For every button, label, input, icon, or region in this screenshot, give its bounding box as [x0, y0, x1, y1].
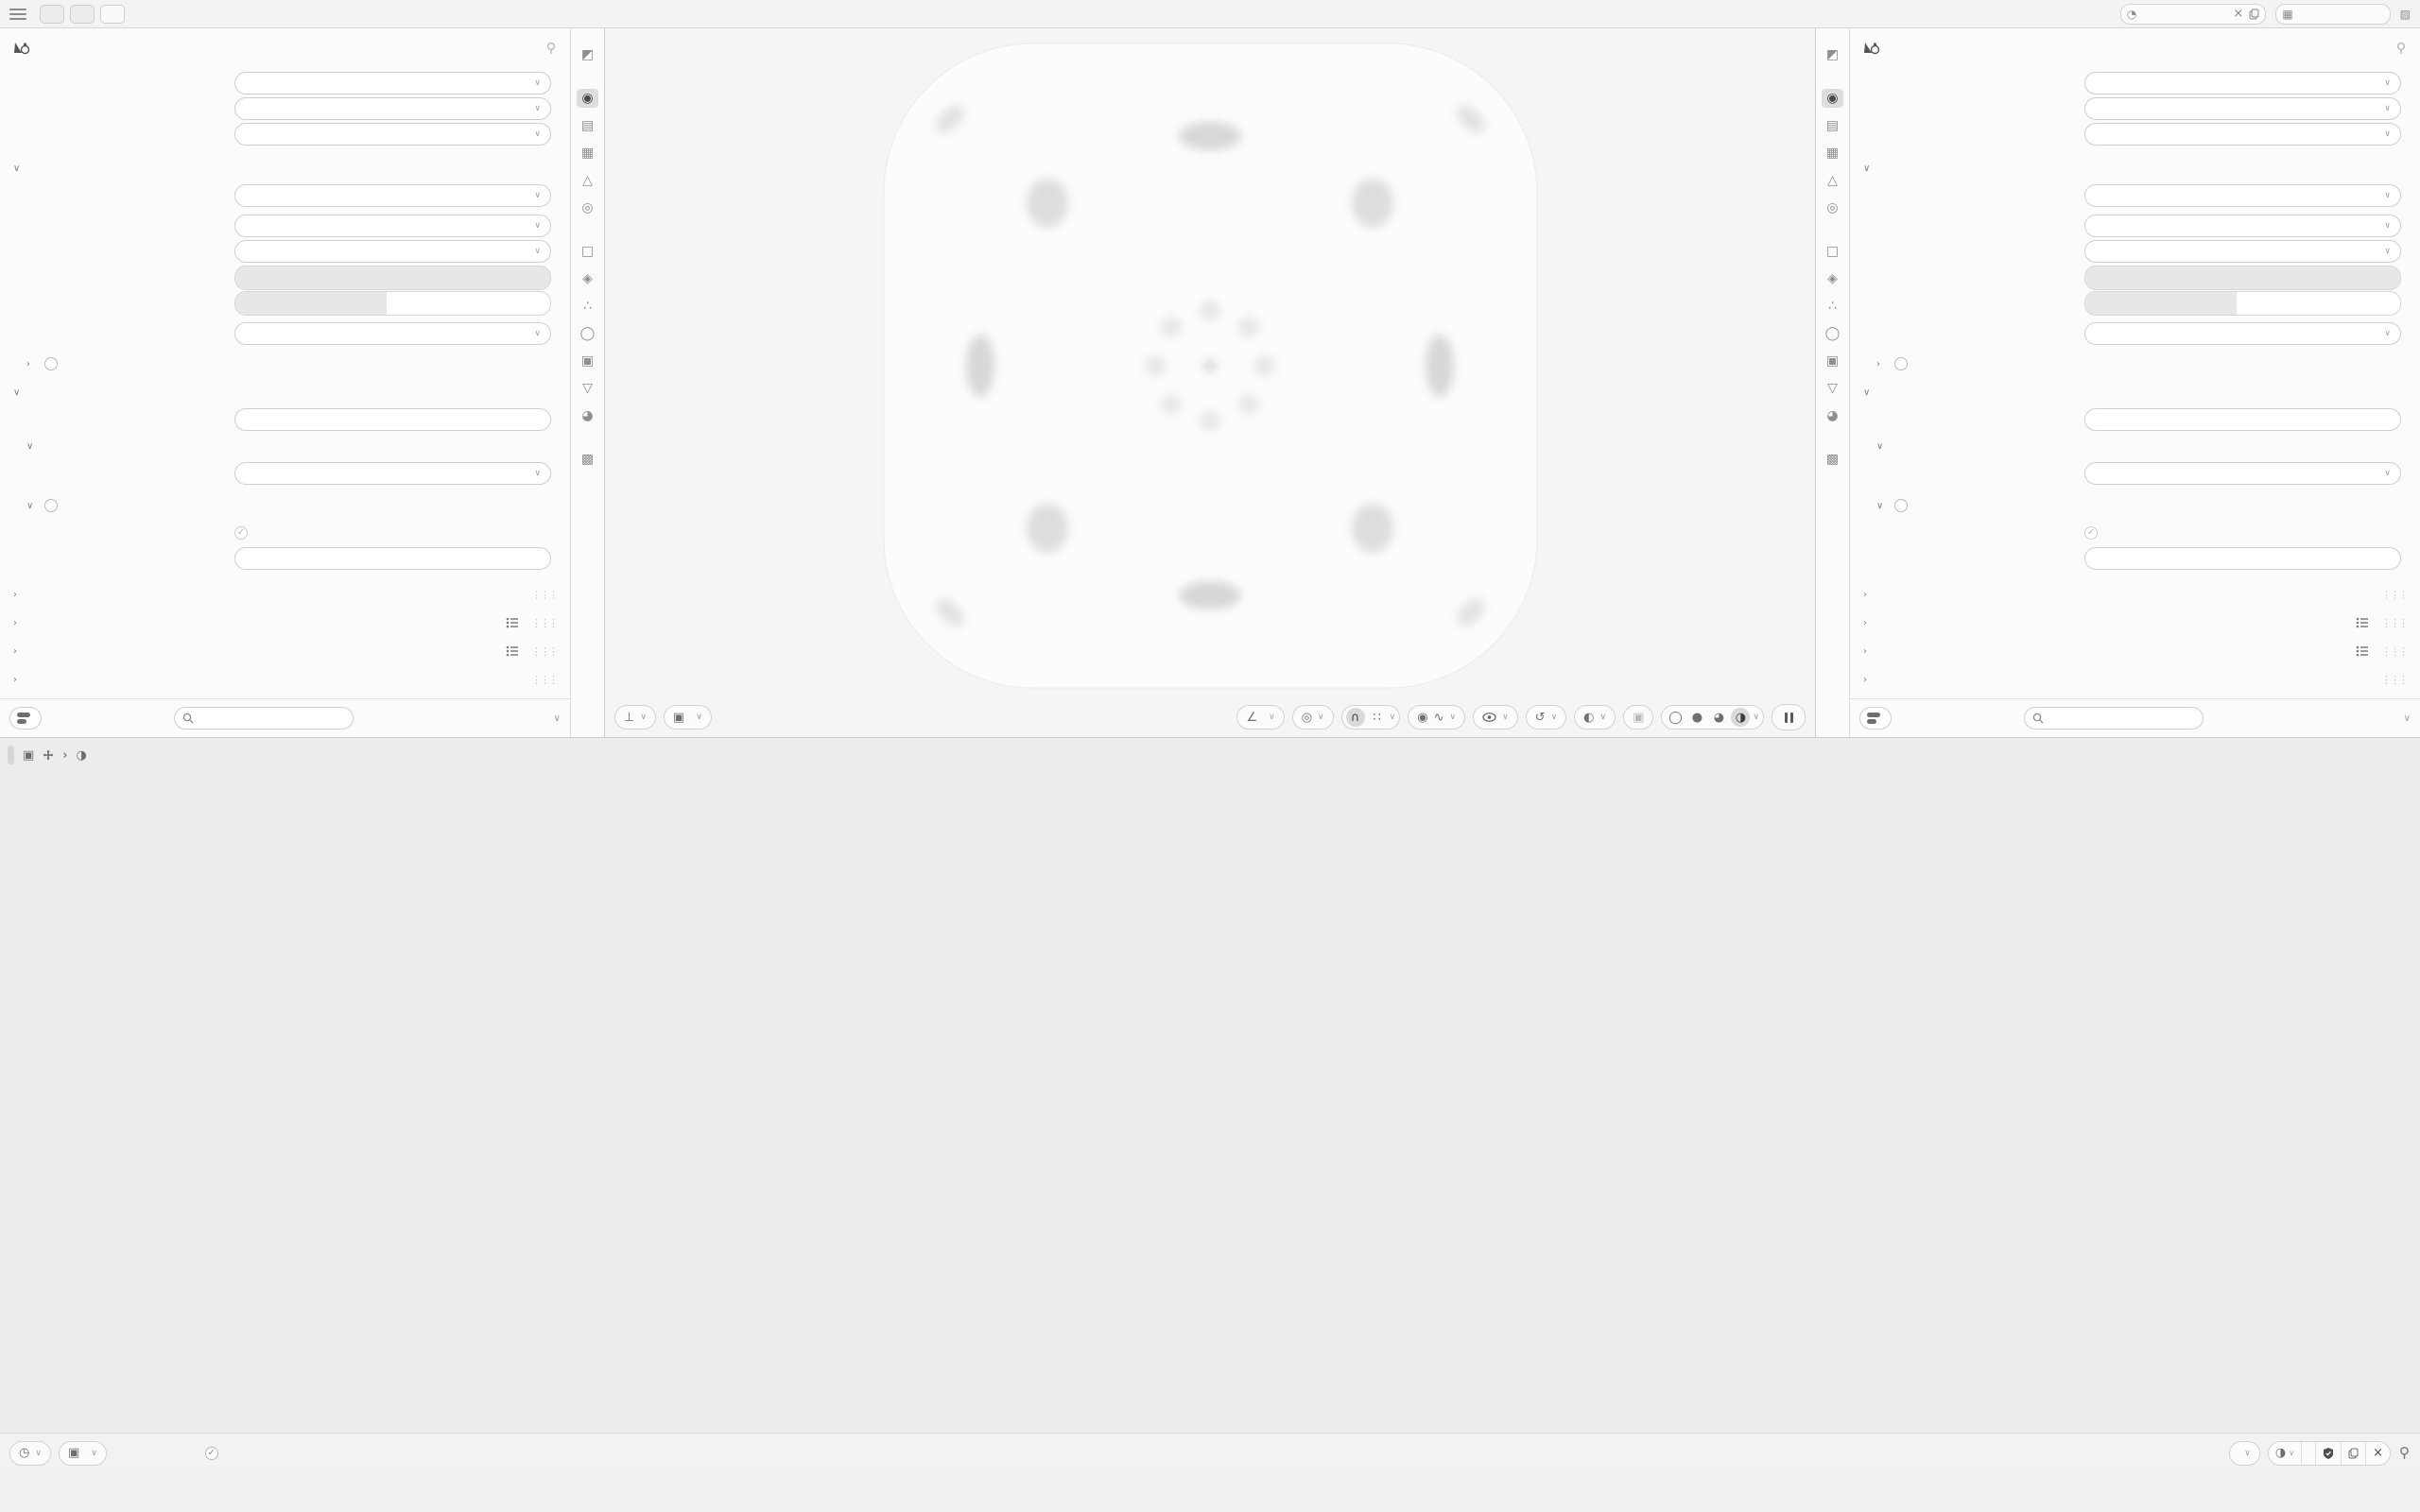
chevron-down-icon: ∨	[534, 129, 541, 139]
chevron-down-icon: ∨	[1502, 713, 1509, 722]
drag-grip-icon[interactable]: ⋮⋮⋮	[2381, 674, 2407, 686]
view-layer-properties-tab-icon[interactable]: ▦	[1822, 144, 1843, 163]
view-transform-select[interactable]: ∨	[234, 215, 551, 237]
sequencer-select[interactable]: ∨	[2084, 322, 2401, 345]
fake-user-shield-icon[interactable]	[2316, 1442, 2342, 1465]
drag-grip-icon[interactable]: ⋮⋮⋮	[531, 589, 557, 601]
shader-type-select[interactable]: ▣∨	[59, 1441, 107, 1466]
chevron-down-icon: ∨	[2384, 129, 2391, 139]
chevron-down-icon: ∨	[534, 469, 541, 478]
editor-type-button[interactable]: ◷∨	[9, 1441, 51, 1466]
collapse-arrow-icon[interactable]: ∨	[13, 163, 25, 174]
transparent-glass-checkbox[interactable]: ✓	[234, 526, 248, 540]
modifiers-properties-tab-icon[interactable]: ◈	[578, 269, 597, 288]
chevron-down-icon: ∨	[2384, 247, 2391, 256]
physics-properties-tab-icon[interactable]: ◯	[576, 324, 600, 343]
physics-properties-tab-icon[interactable]: ◯	[1821, 324, 1845, 343]
workspace-tab[interactable]	[70, 5, 95, 24]
constraints-properties-tab-icon[interactable]: ▣	[1822, 352, 1843, 370]
chevron-down-icon: ∨	[1318, 713, 1324, 722]
proportional-editing[interactable]: ◉∿∨	[1408, 705, 1465, 730]
preset-list-icon[interactable]	[506, 645, 519, 657]
drag-grip-icon[interactable]: ⋮⋮⋮	[2381, 617, 2407, 629]
display-filter-button[interactable]	[9, 707, 42, 730]
gizmos-dropdown[interactable]: ↺∨	[1526, 705, 1567, 730]
device-select[interactable]: ∨	[2084, 123, 2401, 146]
wireframe-shading-icon[interactable]: ◯	[1666, 708, 1685, 727]
chevron-down-icon: ∨	[2384, 78, 2391, 88]
chevron-down-icon: ∨	[2244, 1449, 2251, 1458]
chevron-down-icon: ∨	[534, 247, 541, 256]
chevron-down-icon: ∨	[1269, 713, 1275, 722]
properties-tab-strip: ◩◉▤▦△◎□◈∴◯▣▽◕▩	[570, 28, 604, 737]
pivot-point-select[interactable]: ◎∨	[1292, 705, 1334, 730]
collapse-arrow-icon[interactable]: ∨	[1863, 163, 1875, 174]
browse-material-button[interactable]: ◑∨	[2269, 1442, 2302, 1465]
display-filter-button[interactable]	[1859, 707, 1892, 730]
render-properties-icon	[13, 41, 30, 56]
preset-list-icon[interactable]	[506, 617, 519, 628]
shader-node-editor[interactable]: ▣ › ◑ ◷∨ ▣∨ ✓ ∨ ◑∨	[0, 737, 2420, 1472]
expand-arrow-icon[interactable]: ›	[1876, 359, 1888, 369]
blender-window: ◔ × ▦ ▨	[0, 0, 2420, 1512]
object-icon: ▣	[23, 748, 34, 763]
exposure-slider[interactable]	[2084, 266, 2401, 290]
material-properties-tab-icon[interactable]: ◕	[1822, 406, 1842, 425]
material-name-field[interactable]	[2302, 1442, 2316, 1465]
chevron-down-icon: ∨	[2384, 104, 2391, 113]
drag-grip-icon[interactable]: ⋮⋮⋮	[531, 674, 557, 686]
chevron-down-icon: ∨	[534, 78, 541, 88]
expand-arrow-icon[interactable]: ›	[26, 359, 38, 369]
display-device-select[interactable]: ∨	[234, 184, 551, 207]
material-preview-icon[interactable]: ◕	[1709, 708, 1728, 727]
object-mode-icon: ▣	[673, 711, 684, 725]
expand-arrow-icon[interactable]: ›	[13, 675, 25, 685]
chevron-down-icon[interactable]: ∨	[1753, 713, 1759, 722]
editor-type-button[interactable]: ⊥∨	[614, 705, 656, 730]
object-icon: ▣	[68, 1446, 79, 1460]
overlays-dropdown[interactable]: ◐∨	[1574, 705, 1616, 730]
properties-editor-right: ∨ ∨ ∨ ∨ ∨	[1815, 28, 2420, 737]
chevron-down-icon: ∨	[1551, 713, 1558, 722]
render-pause-button[interactable]	[1772, 704, 1806, 730]
particles-properties-tab-icon[interactable]: ∴	[579, 297, 596, 316]
tool-properties-tab-icon[interactable]: ◩	[577, 45, 598, 64]
chevron-down-icon: ∨	[2289, 1449, 2294, 1457]
drag-grip-icon[interactable]: ⋮⋮⋮	[2381, 589, 2407, 601]
collapse-arrow-icon[interactable]: ∨	[26, 441, 38, 452]
constraints-properties-tab-icon[interactable]: ▣	[577, 352, 598, 370]
scene-icon: ◔	[2127, 8, 2136, 21]
axis-icon: ∠	[1246, 711, 1257, 725]
scene-name-field[interactable]	[2142, 8, 2227, 21]
overlays-icon: ◐	[1583, 711, 1594, 725]
properties-search-input[interactable]	[174, 707, 354, 730]
chevron-down-icon: ∨	[534, 104, 541, 113]
transparent-checkbox[interactable]	[44, 499, 58, 512]
hamburger-menu-icon[interactable]	[9, 9, 26, 20]
xray-toggle[interactable]: ▣	[1623, 705, 1653, 730]
move-cross-icon	[43, 749, 54, 761]
options-chevron-icon[interactable]: ∨	[554, 713, 561, 724]
modifiers-properties-tab-icon[interactable]: ◈	[1823, 269, 1842, 288]
view-layer-field[interactable]	[2299, 8, 2384, 21]
chevron-down-icon: ∨	[2384, 191, 2391, 200]
region-grip[interactable]	[8, 746, 14, 765]
shader-editor-icon: ◷	[19, 1446, 29, 1460]
expand-arrow-icon[interactable]: ›	[13, 590, 25, 600]
expand-arrow-icon[interactable]: ›	[13, 618, 25, 628]
properties-tab-strip: ◩◉▤▦△◎□◈∴◯▣▽◕▩	[1816, 28, 1850, 737]
view-layer-icon: ▦	[2282, 8, 2292, 21]
unlink-material-button[interactable]: ×	[2366, 1442, 2390, 1465]
chevron-down-icon: ∨	[696, 713, 702, 722]
feature-set-select[interactable]: ∨	[2084, 97, 2401, 120]
gamma-slider[interactable]	[2084, 291, 2401, 316]
material-slot-select[interactable]: ∨	[2229, 1441, 2260, 1466]
sequencer-select[interactable]: ∨	[234, 322, 551, 345]
view-layer-selector[interactable]: ▦	[2275, 4, 2390, 25]
film-exposure-field[interactable]	[2084, 408, 2401, 431]
tool-properties-tab-icon[interactable]: ◩	[1822, 45, 1843, 64]
render-engine-select[interactable]: ∨	[234, 72, 551, 94]
options-chevron-icon[interactable]: ∨	[2404, 713, 2411, 724]
transparent-glass-checkbox[interactable]: ✓	[2084, 526, 2098, 540]
pin-icon[interactable]	[2395, 42, 2407, 55]
pixel-filter-type-select[interactable]: ∨	[234, 462, 551, 485]
expand-arrow-icon[interactable]: ›	[1863, 675, 1875, 685]
feature-set-select[interactable]: ∨	[234, 97, 551, 120]
material-datablock: ◑∨ ×	[2268, 1441, 2391, 1466]
rendered-object	[874, 38, 1547, 694]
collapse-arrow-icon[interactable]: ∨	[1876, 501, 1888, 511]
eye-icon	[1482, 713, 1496, 722]
solid-shading-icon[interactable]: ●	[1687, 708, 1706, 727]
render-display-icon[interactable]: ▨	[2400, 8, 2411, 21]
scene-selector[interactable]: ◔ ×	[2120, 4, 2266, 25]
render-properties-tab-icon[interactable]: ◉	[577, 89, 597, 108]
new-material-button[interactable]	[2342, 1442, 2366, 1465]
output-properties-tab-icon[interactable]: ▤	[1822, 116, 1843, 135]
copy-icon[interactable]	[2249, 9, 2259, 20]
snap-magnet-icon[interactable]: ∩	[1346, 708, 1365, 727]
view-layer-properties-tab-icon[interactable]: ▦	[577, 144, 598, 163]
material-properties-tab-icon[interactable]: ◕	[577, 406, 597, 425]
texture-properties-tab-icon[interactable]: ▩	[1822, 450, 1843, 469]
collapse-arrow-icon[interactable]: ∨	[1863, 387, 1875, 398]
expand-arrow-icon[interactable]: ›	[1863, 618, 1875, 628]
topbar: ◔ × ▦ ▨	[0, 0, 2420, 28]
rendered-shading-icon[interactable]: ◑	[1731, 708, 1750, 727]
expand-arrow-icon[interactable]: ›	[1863, 646, 1875, 657]
breadcrumb-separator: ›	[62, 748, 67, 763]
preset-list-icon[interactable]	[2356, 645, 2369, 657]
chevron-down-icon: ∨	[2384, 469, 2391, 478]
drag-grip-icon[interactable]: ⋮⋮⋮	[2381, 645, 2407, 658]
collapse-arrow-icon[interactable]: ∨	[1876, 441, 1888, 452]
node-links-layer	[0, 738, 2420, 1472]
properties-editor-left: ∨ ∨ ∨ ∨ ∨	[0, 28, 605, 737]
proportional-icon: ◉	[1417, 711, 1427, 725]
shading-mode-group: ◯ ● ◕ ◑ ∨	[1661, 705, 1764, 730]
viewport-header: ⊥∨ ▣∨ ∠∨ ◎∨ ∩ ∷ ∨ ◉∿∨ ∨ ↺∨ ◐∨	[605, 697, 1815, 737]
particles-properties-tab-icon[interactable]: ∴	[1824, 297, 1841, 316]
xray-icon: ▣	[1633, 711, 1644, 725]
scene-properties-tab-icon[interactable]: △	[1823, 171, 1842, 190]
object-properties-tab-icon[interactable]: □	[1822, 242, 1843, 261]
device-select[interactable]: ∨	[234, 123, 551, 146]
preset-list-icon[interactable]	[2356, 617, 2369, 628]
drag-grip-icon[interactable]: ⋮⋮⋮	[531, 617, 557, 629]
chevron-down-icon: ∨	[91, 1449, 97, 1458]
roughness-threshold-field[interactable]	[2084, 547, 2401, 570]
chevron-down-icon: ∨	[534, 191, 541, 200]
object-data-properties-tab-icon[interactable]: ▽	[1823, 379, 1842, 398]
gamma-slider[interactable]	[234, 291, 551, 316]
roughness-threshold-field[interactable]	[234, 547, 551, 570]
transform-orientation-select[interactable]: ∠∨	[1236, 705, 1284, 730]
transparent-checkbox[interactable]	[1894, 499, 1908, 512]
pixel-filter-type-select[interactable]: ∨	[2084, 462, 2401, 485]
material-icon: ◑	[2275, 1446, 2286, 1460]
chevron-down-icon: ∨	[1600, 713, 1607, 722]
chevron-down-icon: ∨	[534, 221, 541, 231]
snapping-group: ∩ ∷ ∨	[1341, 705, 1401, 730]
chevron-down-icon: ∨	[2384, 221, 2391, 231]
chevron-down-icon[interactable]: ∨	[1390, 713, 1396, 722]
scene-properties-tab-icon[interactable]: △	[578, 171, 597, 190]
render-properties-icon	[1863, 41, 1880, 56]
mode-select[interactable]: ▣∨	[664, 705, 712, 730]
use-curves-checkbox[interactable]	[1894, 357, 1908, 370]
workspace-tab-active[interactable]	[100, 5, 125, 24]
workspace-tab[interactable]	[40, 5, 64, 24]
object-data-properties-tab-icon[interactable]: ▽	[578, 379, 597, 398]
3d-viewport[interactable]: ⊥∨ ▣∨ ∠∨ ◎∨ ∩ ∷ ∨ ◉∿∨ ∨ ↺∨ ◐∨	[605, 28, 1815, 737]
view-transform-select[interactable]: ∨	[2084, 215, 2401, 237]
texture-properties-tab-icon[interactable]: ▩	[577, 450, 598, 469]
chevron-down-icon: ∨	[534, 329, 541, 338]
expand-arrow-icon[interactable]: ›	[1863, 590, 1875, 600]
pin-icon[interactable]	[2398, 1446, 2411, 1460]
output-properties-tab-icon[interactable]: ▤	[577, 116, 598, 135]
collapse-arrow-icon[interactable]: ∨	[26, 501, 38, 511]
chevron-down-icon: ∨	[640, 713, 647, 722]
search-icon	[182, 713, 194, 724]
node-editor-header: ◷∨ ▣∨ ✓ ∨ ◑∨ ×	[0, 1433, 2420, 1472]
unlink-icon[interactable]: ×	[2233, 7, 2243, 21]
viewport-editor-icon: ⊥	[624, 711, 634, 725]
properties-search-input[interactable]	[2024, 707, 2204, 730]
pivot-icon: ◎	[1302, 711, 1312, 725]
world-properties-tab-icon[interactable]: ◎	[1822, 198, 1842, 217]
chevron-down-icon: ∨	[35, 1449, 42, 1458]
expand-arrow-icon[interactable]: ›	[13, 646, 25, 657]
exposure-slider[interactable]	[234, 266, 551, 290]
look-select[interactable]: ∨	[2084, 240, 2401, 263]
chevron-down-icon: ∨	[2384, 329, 2391, 338]
use-curves-checkbox[interactable]	[44, 357, 58, 370]
visibility-dropdown[interactable]: ∨	[1473, 705, 1518, 730]
snap-settings-icon[interactable]: ∷	[1368, 708, 1387, 727]
render-properties-tab-icon[interactable]: ◉	[1822, 89, 1842, 108]
collapse-arrow-icon[interactable]: ∨	[13, 387, 25, 398]
search-icon	[2032, 713, 2044, 724]
render-engine-select[interactable]: ∨	[2084, 72, 2401, 94]
world-properties-tab-icon[interactable]: ◎	[577, 198, 597, 217]
film-exposure-field[interactable]	[234, 408, 551, 431]
gizmo-icon: ↺	[1535, 711, 1546, 725]
display-device-select[interactable]: ∨	[2084, 184, 2401, 207]
falloff-icon: ∿	[1434, 711, 1444, 725]
pin-icon[interactable]	[545, 42, 557, 55]
chevron-down-icon: ∨	[1449, 713, 1456, 722]
use-nodes-checkbox[interactable]: ✓	[205, 1447, 218, 1460]
material-icon: ◑	[77, 748, 87, 763]
object-properties-tab-icon[interactable]: □	[577, 242, 598, 261]
drag-grip-icon[interactable]: ⋮⋮⋮	[531, 645, 557, 658]
look-select[interactable]: ∨	[234, 240, 551, 263]
breadcrumb: ▣ › ◑	[8, 746, 95, 765]
